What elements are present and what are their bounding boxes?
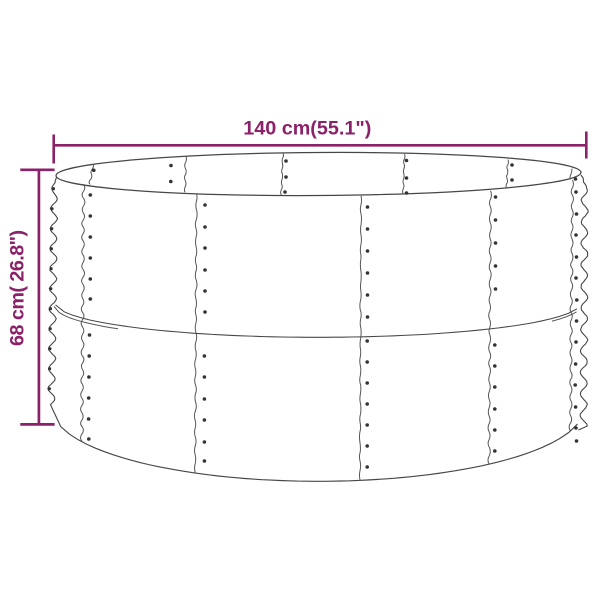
svg-text:68 cm( 26.8"): 68 cm( 26.8") — [7, 230, 29, 346]
svg-text:140 cm(55.1"): 140 cm(55.1") — [243, 117, 371, 139]
